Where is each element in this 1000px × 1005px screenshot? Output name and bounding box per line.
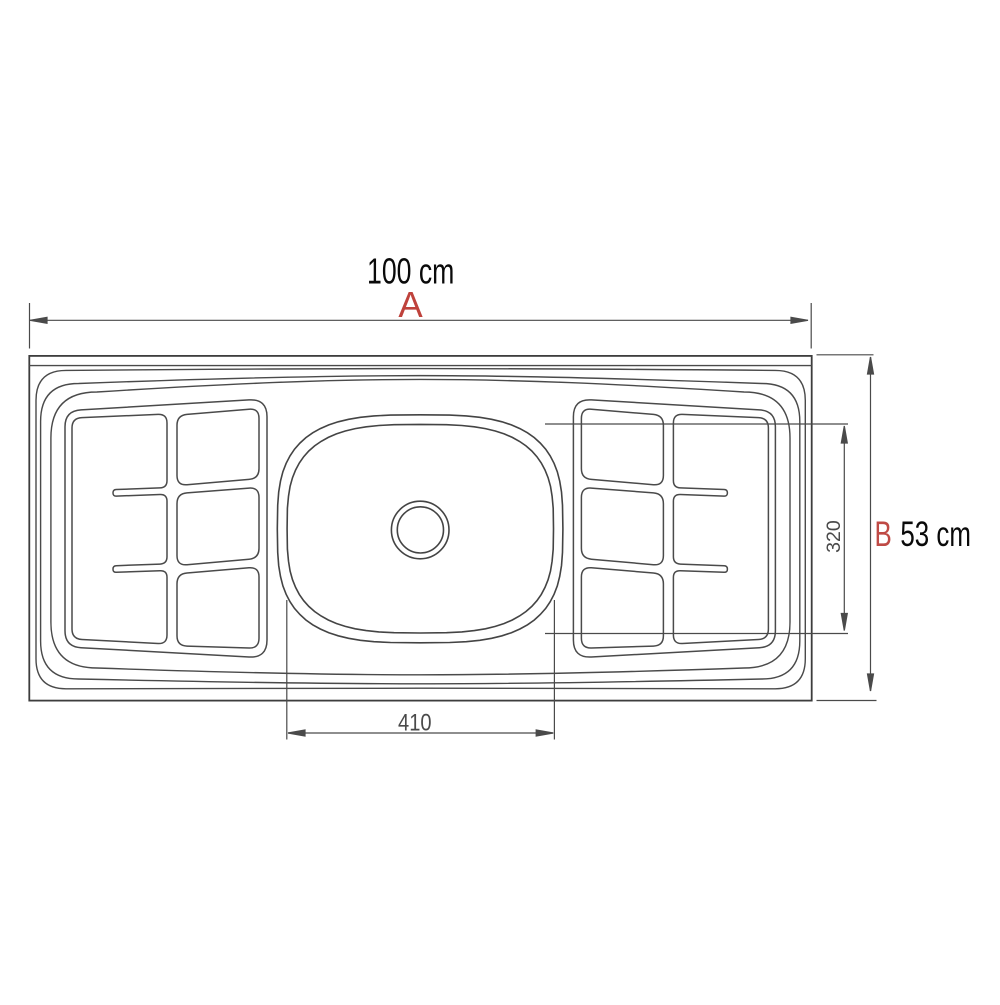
svg-text:B: B [875,514,892,554]
svg-text:A: A [398,284,423,325]
svg-text:410: 410 [398,708,432,735]
svg-text:320: 320 [823,520,845,553]
svg-text:53 cm: 53 cm [900,514,971,554]
